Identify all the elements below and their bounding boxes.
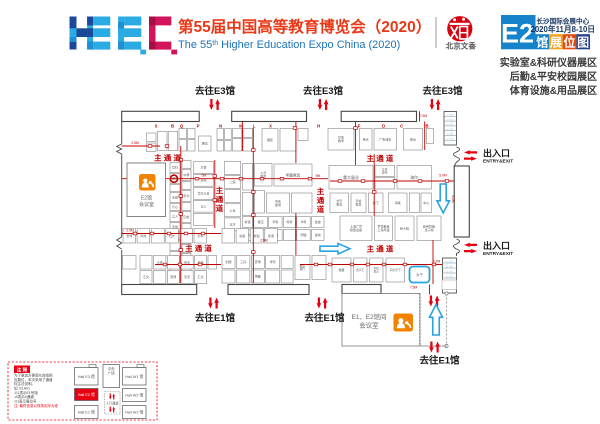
svg-text:三好: 三好 — [240, 259, 246, 264]
svg-text:2.5M: 2.5M — [126, 229, 134, 233]
svg-text:主通道: 主通道 — [216, 185, 224, 213]
svg-text:-A表示A通道: -A表示A通道 — [14, 394, 34, 399]
svg-text:去往E1馆: 去往E1馆 — [419, 355, 460, 367]
svg-text:展厅: 展厅 — [300, 267, 306, 271]
svg-text:Hall W2 馆: Hall W2 馆 — [125, 393, 143, 398]
svg-text:E2馆: E2馆 — [447, 113, 454, 118]
svg-text:科大讯飞: 科大讯飞 — [390, 268, 401, 272]
svg-text:上海风语: 上海风语 — [377, 227, 389, 232]
svg-text:P: P — [197, 123, 200, 128]
svg-text:E2馆: E2馆 — [447, 122, 454, 127]
svg-text:松下: 松下 — [373, 200, 379, 205]
svg-text:明锐: 明锐 — [300, 232, 306, 237]
svg-text:文香: 文香 — [200, 165, 206, 170]
svg-text:立人: 立人 — [172, 214, 178, 219]
svg-text:教学: 教学 — [338, 138, 344, 143]
svg-text:体育设施&用品展区: 体育设施&用品展区 — [510, 84, 597, 97]
svg-text:海尔: 海尔 — [410, 174, 418, 180]
svg-text:9.2M: 9.2M — [451, 195, 455, 203]
svg-text:中央: 中央 — [108, 366, 116, 371]
svg-text:X: X — [269, 123, 272, 128]
svg-text:E2馆: E2馆 — [447, 132, 454, 137]
svg-text:会议室: 会议室 — [359, 321, 379, 330]
svg-text:新诺: 新诺 — [244, 219, 250, 224]
svg-text:应展位，本次采用了通道: 应展位，本次采用了通道 — [14, 377, 53, 382]
svg-text:E1、E2馆间: E1、E2馆间 — [352, 312, 387, 321]
svg-text:教具: 教具 — [336, 202, 342, 207]
svg-text:出入口: 出入口 — [483, 148, 510, 159]
svg-text:E2馆: E2馆 — [447, 137, 454, 142]
svg-text:希沃: 希沃 — [363, 136, 369, 141]
svg-text:贝尔: 贝尔 — [183, 193, 189, 198]
svg-text:优谷: 优谷 — [254, 233, 260, 238]
svg-text:重大展业: 重大展业 — [343, 174, 359, 180]
svg-text:去往E1馆: 去往E1馆 — [304, 312, 345, 324]
svg-text:彩星: 彩星 — [239, 233, 245, 238]
svg-text:创想: 创想 — [225, 259, 231, 264]
svg-text:Q: Q — [180, 123, 184, 128]
svg-text:安博: 安博 — [170, 274, 176, 279]
svg-text:B: B — [171, 123, 174, 128]
svg-text:四合: 四合 — [183, 214, 189, 219]
svg-text:明基教具: 明基教具 — [286, 172, 301, 177]
svg-text:金榜: 金榜 — [315, 232, 321, 237]
svg-text:主通道: 主通道 — [317, 186, 325, 214]
svg-text:微星: 微星 — [338, 267, 344, 272]
svg-text:F: F — [358, 123, 361, 128]
svg-text:去往E1馆: 去往E1馆 — [195, 312, 236, 324]
svg-text:主 通 道: 主 通 道 — [185, 243, 212, 253]
svg-text:人行通道: 人行通道 — [106, 400, 120, 405]
svg-text:后勤&平安校园展区: 后勤&平安校园展区 — [510, 70, 597, 83]
svg-text:5M: 5M — [202, 174, 207, 178]
svg-text:7.5M: 7.5M — [410, 286, 418, 290]
svg-text:中心: 中心 — [423, 200, 429, 205]
svg-text:为了更加方便观众查找相: 为了更加方便观众查找相 — [14, 373, 53, 378]
svg-text:汇文: 汇文 — [198, 274, 204, 279]
svg-text:广场: 广场 — [108, 371, 116, 376]
svg-text:2020年11月8-10日: 2020年11月8-10日 — [531, 24, 596, 34]
svg-text:E2馆: E2馆 — [447, 117, 454, 122]
svg-text:M: M — [239, 123, 243, 128]
svg-text:E2馆: E2馆 — [141, 195, 152, 202]
svg-text:主 通 道: 主 通 道 — [367, 153, 394, 163]
svg-text:E2馆: E2馆 — [447, 127, 454, 132]
svg-text:Hall E3 馆: Hall E3 馆 — [78, 374, 95, 379]
svg-text:主 通 道: 主 通 道 — [154, 152, 181, 162]
svg-text:齐心: 齐心 — [172, 204, 178, 209]
svg-text:主 通 道: 主 通 道 — [367, 243, 394, 253]
svg-text:E2馆: E2馆 — [446, 269, 453, 274]
svg-text:去往E3馆: 去往E3馆 — [303, 85, 344, 97]
svg-text:ENTRY&EXIT: ENTRY&EXIT — [483, 251, 513, 257]
svg-text:出入口: 出入口 — [483, 240, 510, 251]
svg-text:安博: 安博 — [255, 259, 261, 264]
svg-text:大干: 大干 — [416, 272, 423, 277]
svg-text:D: D — [382, 123, 385, 128]
svg-text:学普: 学普 — [270, 259, 276, 264]
svg-text:7.5M: 7.5M — [420, 114, 428, 118]
svg-text:海笔: 海笔 — [395, 200, 401, 205]
svg-text:正方: 正方 — [229, 222, 235, 227]
svg-text:注: 最终信息以现场实际为准: 注: 最终信息以现场实际为准 — [14, 403, 58, 408]
svg-text:5.0M: 5.0M — [439, 174, 447, 178]
svg-text:大成: 大成 — [157, 259, 163, 264]
svg-text:去往E3馆: 去往E3馆 — [195, 85, 236, 97]
svg-text:E2馆: E2馆 — [446, 264, 453, 269]
svg-text:教具: 教具 — [355, 202, 361, 207]
svg-text:Hall W1 馆: Hall W1 馆 — [125, 374, 143, 379]
svg-text:-E1表示E1号馆: -E1表示E1号馆 — [14, 390, 38, 395]
svg-text:N: N — [219, 123, 222, 128]
svg-text:B: B — [425, 123, 428, 128]
svg-text:The 55th Higher Education Expo: The 55th Higher Education Expo China (20… — [178, 39, 400, 51]
svg-text:馆: 馆 — [536, 35, 548, 50]
svg-text:铭台: 铭台 — [410, 136, 416, 141]
svg-text:新大陆: 新大陆 — [400, 225, 409, 230]
svg-text:2.5M: 2.5M — [260, 239, 268, 243]
svg-text:注 释: 注 释 — [17, 366, 28, 373]
svg-text:星空: 星空 — [258, 219, 264, 224]
svg-text:Hall W3 馆: Hall W3 馆 — [125, 410, 143, 415]
svg-text:ENTRY&EXIT: ENTRY&EXIT — [483, 159, 513, 165]
svg-text:Hall E2 馆: Hall E2 馆 — [78, 392, 95, 397]
svg-text:9.2M: 9.2M — [433, 260, 441, 264]
svg-text:立人: 立人 — [200, 204, 206, 209]
svg-text:天宇: 天宇 — [184, 274, 190, 279]
svg-text:模型设备: 模型设备 — [350, 227, 362, 232]
svg-text:实验室&科研仪器展区: 实验室&科研仪器展区 — [500, 56, 597, 69]
svg-text:上台: 上台 — [229, 207, 235, 212]
svg-text:S: S — [155, 123, 158, 128]
svg-text:华科: 华科 — [300, 219, 306, 224]
svg-text:欧帝: 欧帝 — [382, 171, 388, 175]
svg-text:标注法说明。: 标注法说明。 — [14, 381, 35, 386]
svg-text:华科: 华科 — [272, 219, 278, 224]
svg-text:星球: 星球 — [275, 202, 281, 207]
svg-text:第55届中国高等教育博览会（2020）: 第55届中国高等教育博览会（2020） — [178, 17, 431, 36]
svg-text:会议室: 会议室 — [139, 201, 154, 208]
svg-text:Hall E1 馆: Hall E1 馆 — [78, 410, 95, 415]
svg-text:展位: 展位 — [202, 141, 208, 146]
svg-text:L: L — [253, 123, 256, 128]
svg-text:汇文: 汇文 — [143, 274, 149, 279]
svg-text:启迪: 启迪 — [315, 219, 321, 224]
svg-text:希沃: 希沃 — [374, 269, 380, 273]
svg-text:9M: 9M — [316, 174, 321, 178]
svg-text:展区: 展区 — [267, 137, 273, 142]
svg-text:华科: 华科 — [172, 165, 178, 170]
svg-text:天健: 天健 — [172, 195, 178, 200]
svg-text:E2馆: E2馆 — [446, 274, 453, 279]
svg-text:位: 位 — [563, 35, 575, 50]
svg-text:新诺: 新诺 — [268, 233, 274, 238]
svg-text:-01表示展位号: -01表示展位号 — [14, 399, 37, 404]
svg-text:龙子湖: 龙子湖 — [424, 227, 433, 232]
svg-text:科导: 科导 — [286, 219, 292, 224]
svg-text:华文众合: 华文众合 — [197, 191, 209, 196]
svg-text:去往E3馆: 去往E3馆 — [422, 85, 463, 97]
svg-text:展: 展 — [550, 36, 562, 50]
svg-text:北京文香: 北京文香 — [446, 41, 477, 51]
svg-text:H: H — [317, 123, 320, 128]
svg-text:E2馆: E2馆 — [446, 259, 453, 264]
svg-text:E2: E2 — [501, 19, 534, 49]
svg-text:新声汇: 新声汇 — [356, 268, 364, 272]
svg-text:如: E1A01: 如: E1A01 — [14, 386, 30, 391]
svg-text:博雅: 博雅 — [255, 274, 261, 279]
svg-text:图: 图 — [577, 36, 589, 50]
svg-text:长沙国际会展中心: 长沙国际会展中心 — [536, 16, 589, 25]
svg-text:音王: 音王 — [184, 259, 190, 264]
svg-text:C: C — [400, 123, 403, 128]
svg-text:2.5M: 2.5M — [131, 141, 139, 145]
svg-text:广告油墨: 广告油墨 — [379, 136, 391, 141]
svg-text:二囍: 二囍 — [229, 179, 235, 184]
svg-text:中录: 中录 — [183, 172, 189, 177]
